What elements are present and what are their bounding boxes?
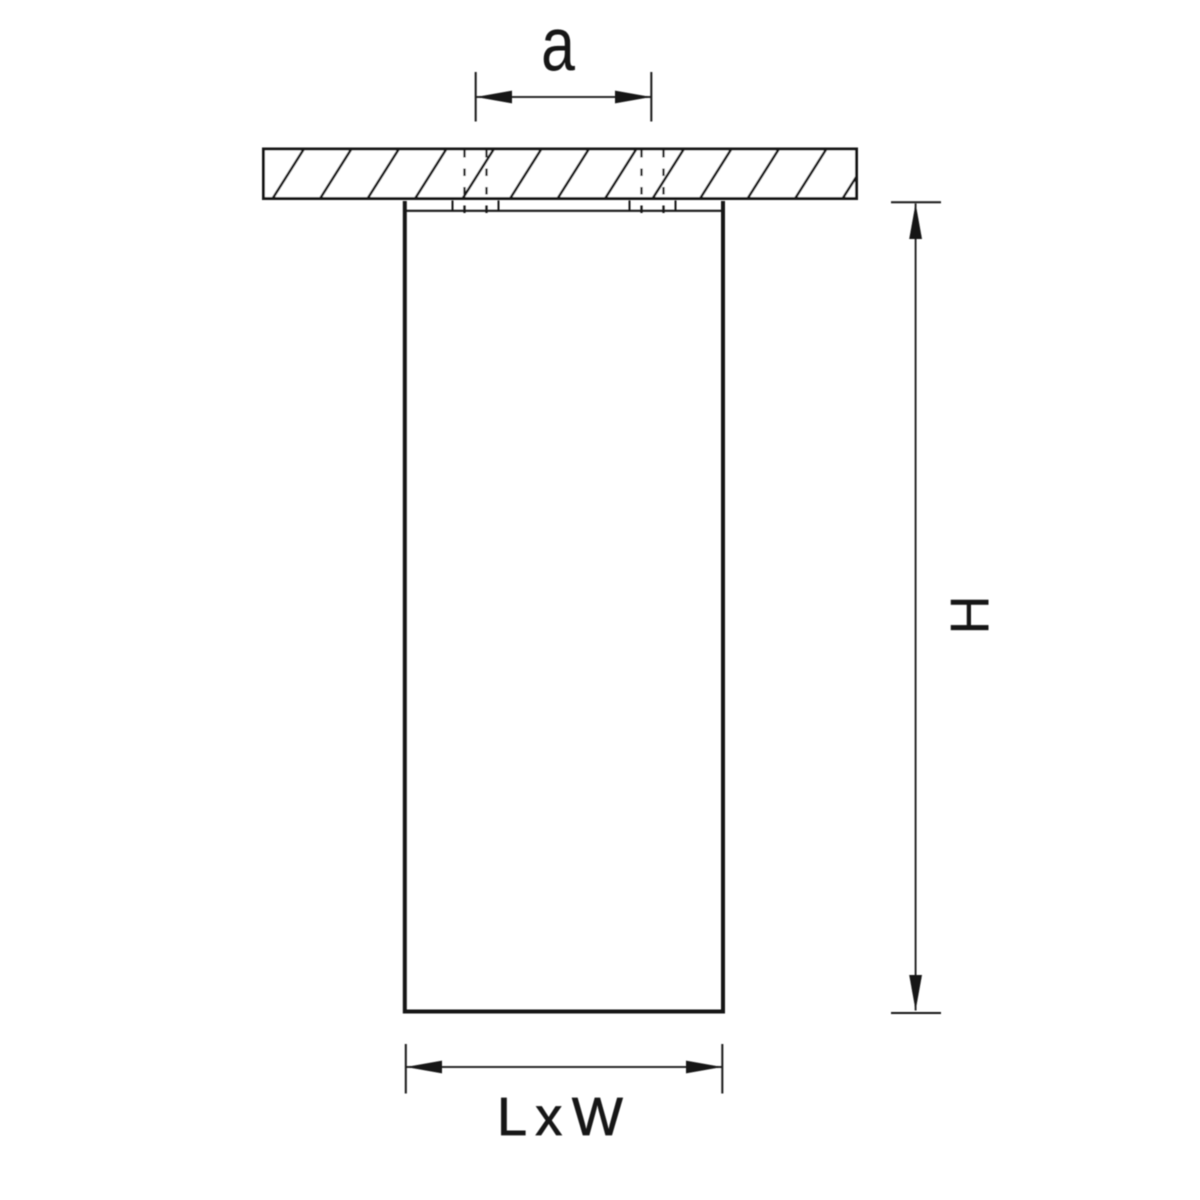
svg-text:L: L [497,1087,527,1147]
svg-text:W: W [572,1087,623,1147]
svg-text:a: a [541,2,575,87]
svg-text:H: H [940,595,1001,634]
svg-text:x: x [535,1087,562,1147]
